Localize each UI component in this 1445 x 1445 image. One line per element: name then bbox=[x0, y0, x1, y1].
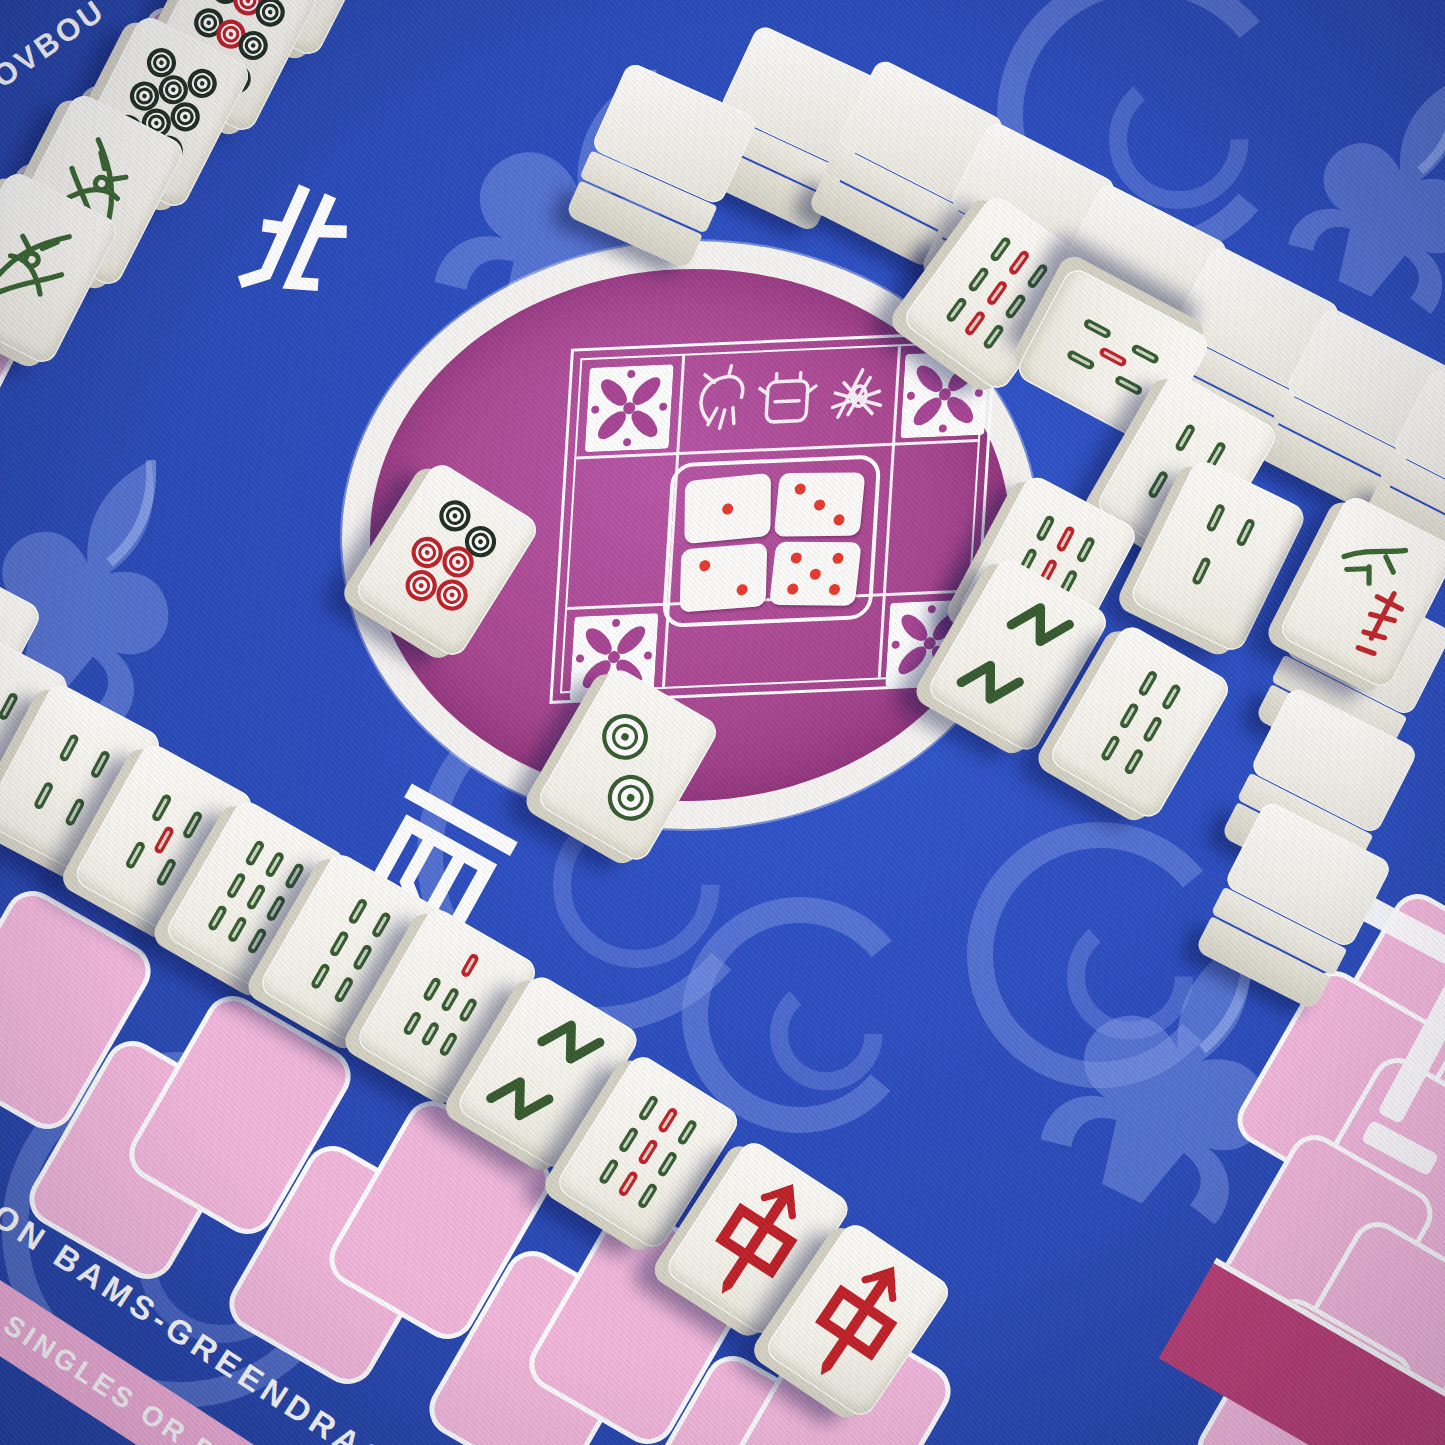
die-pip bbox=[790, 553, 802, 564]
die-pip bbox=[828, 584, 840, 595]
die-pip bbox=[814, 499, 826, 510]
die-pip bbox=[736, 585, 747, 597]
die-pip bbox=[833, 514, 845, 525]
die-pip bbox=[787, 583, 799, 594]
dice-panel bbox=[662, 455, 882, 629]
die-pip bbox=[794, 484, 806, 495]
die-pip bbox=[722, 503, 733, 515]
die-showing-2 bbox=[680, 543, 768, 613]
pinwheel-motif bbox=[584, 364, 673, 456]
center-art-glyphs bbox=[680, 350, 895, 451]
center-square-frame bbox=[549, 330, 996, 704]
die-showing-1 bbox=[684, 473, 771, 544]
die-pip bbox=[699, 560, 710, 572]
die-showing-3 bbox=[774, 473, 866, 537]
mahjong-table-photo: OVBOU GON BAMS-GREENDRAGON A SINGLES OR … bbox=[0, 0, 1445, 1445]
die-showing-5 bbox=[769, 542, 862, 606]
die-pip bbox=[809, 568, 821, 579]
die-pip bbox=[831, 553, 843, 564]
